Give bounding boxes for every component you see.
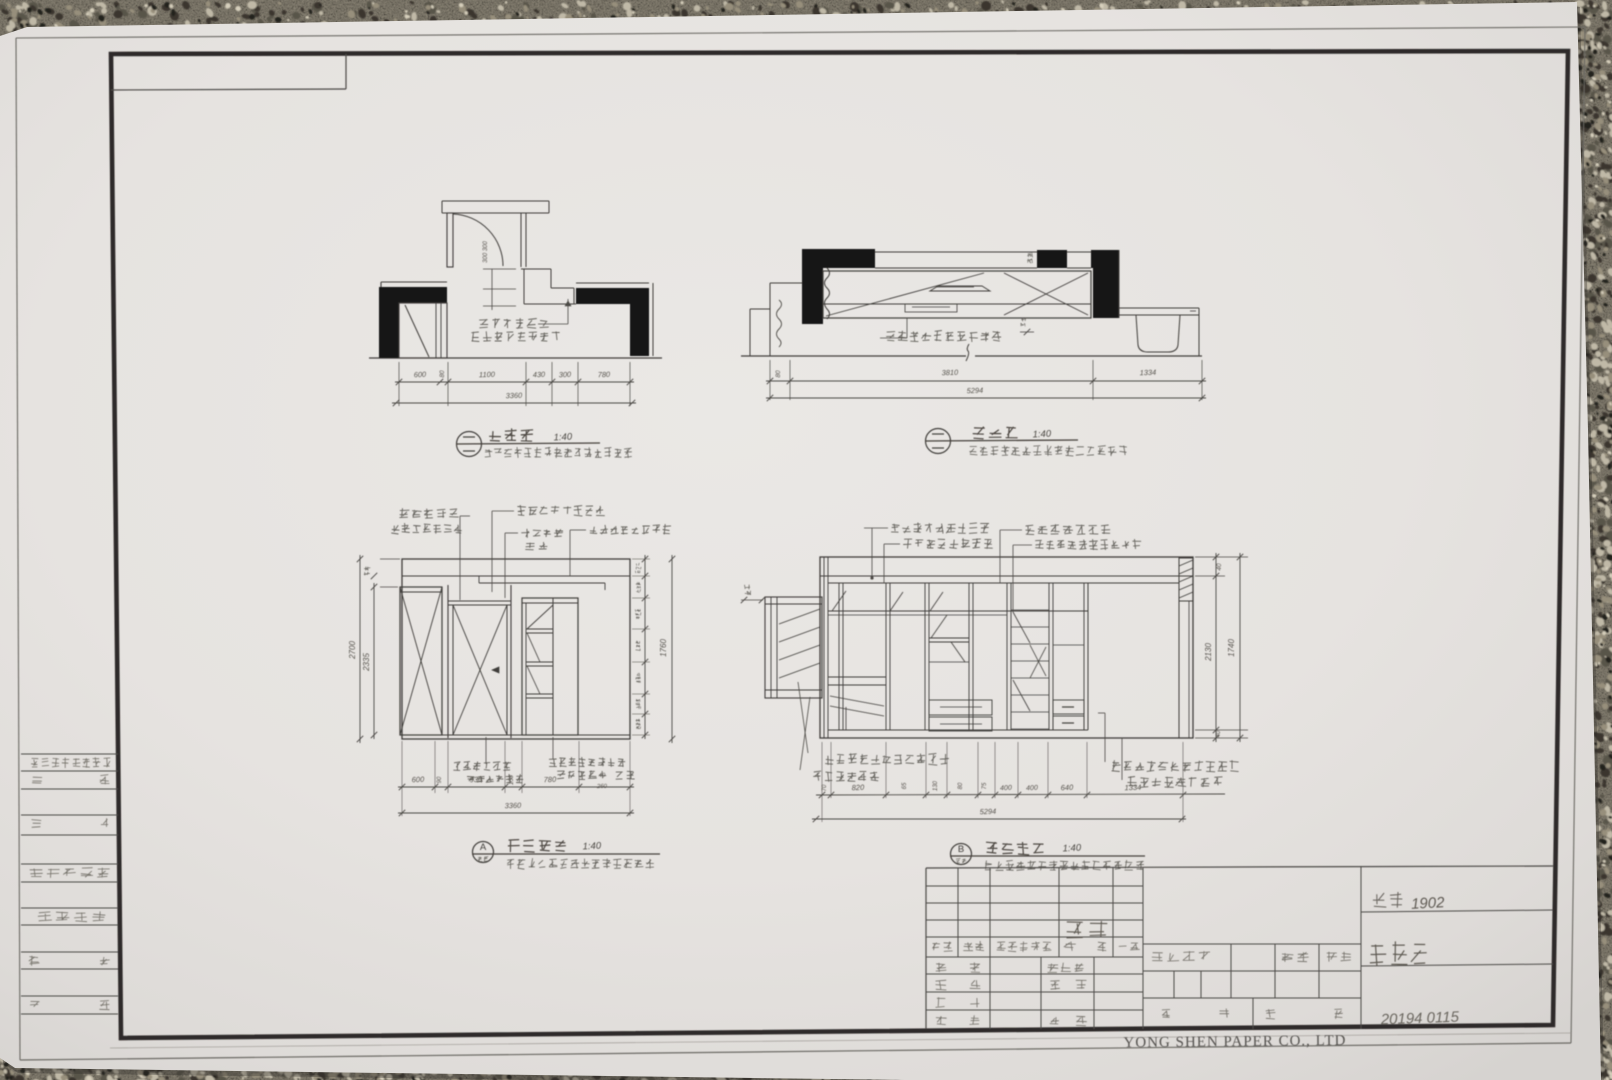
svg-text:80: 80 (775, 370, 782, 378)
svg-text:600: 600 (412, 775, 426, 784)
svg-text:150: 150 (509, 774, 515, 785)
svg-text:1:40: 1:40 (553, 431, 573, 443)
svg-text:3360: 3360 (505, 801, 523, 811)
svg-text:780: 780 (598, 370, 612, 379)
svg-text:2130: 2130 (1204, 643, 1213, 662)
svg-text:780: 780 (544, 775, 558, 784)
svg-text:75: 75 (982, 782, 988, 789)
svg-text:80: 80 (439, 370, 446, 378)
svg-text:2335: 2335 (362, 653, 371, 672)
svg-text:70: 70 (822, 784, 828, 791)
svg-text:640: 640 (1061, 783, 1075, 792)
svg-text:130: 130 (933, 780, 939, 791)
svg-text:1:40: 1:40 (1032, 428, 1052, 440)
svg-text:5294: 5294 (967, 386, 984, 396)
svg-text:YONG SHEN PAPER CO., LTD: YONG SHEN PAPER CO., LTD (1123, 1033, 1346, 1051)
svg-text:1100: 1100 (479, 370, 496, 380)
svg-text:430: 430 (533, 370, 547, 379)
svg-text:5294: 5294 (980, 807, 997, 817)
svg-text:300: 300 (559, 370, 573, 379)
svg-text:80: 80 (958, 782, 964, 789)
svg-text:1:40: 1:40 (582, 840, 602, 852)
svg-text:400: 400 (1026, 785, 1038, 792)
svg-text:600: 600 (414, 370, 428, 379)
svg-text:3810: 3810 (942, 368, 960, 378)
svg-text:1334: 1334 (1140, 368, 1157, 378)
svg-text:40: 40 (1216, 730, 1222, 737)
svg-text:20194 0115: 20194 0115 (1380, 1009, 1460, 1029)
svg-text:1:40: 1:40 (1062, 842, 1082, 854)
svg-text:930: 930 (470, 775, 484, 784)
svg-text:40: 40 (599, 773, 607, 779)
svg-text:40: 40 (1216, 563, 1223, 571)
svg-text:400: 400 (1000, 785, 1012, 792)
svg-text:1740: 1740 (1227, 639, 1236, 657)
svg-text:820: 820 (852, 783, 866, 792)
svg-text:1334: 1334 (1124, 783, 1141, 793)
svg-text:1902: 1902 (1411, 894, 1446, 913)
svg-text:300 300: 300 300 (483, 241, 489, 263)
svg-text:A: A (480, 842, 487, 853)
svg-text:260: 260 (596, 784, 608, 790)
svg-text:65: 65 (902, 782, 908, 789)
svg-text:2700: 2700 (348, 641, 357, 660)
svg-text:B: B (958, 844, 964, 855)
svg-text:3360: 3360 (506, 391, 524, 401)
svg-text:1760: 1760 (659, 639, 668, 657)
svg-text:90: 90 (437, 776, 443, 783)
